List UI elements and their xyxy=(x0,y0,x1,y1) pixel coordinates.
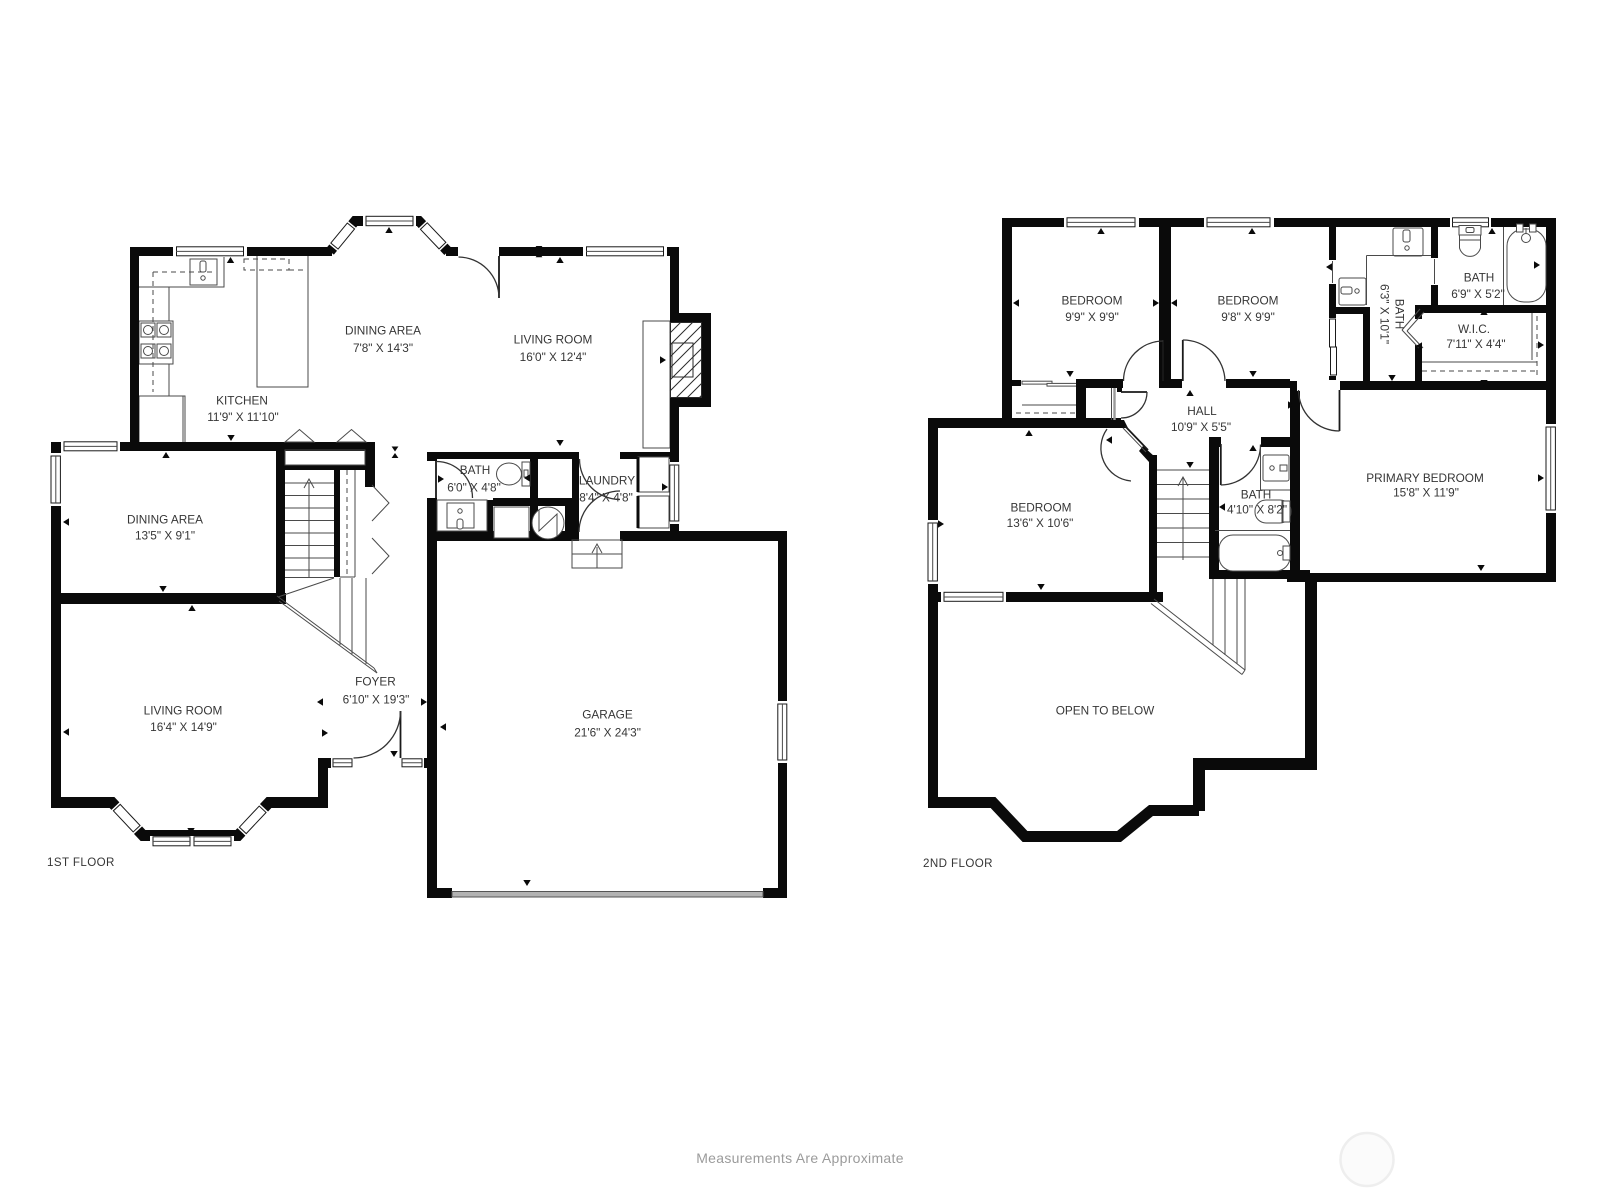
svg-text:10'9" X 5'5": 10'9" X 5'5" xyxy=(1171,420,1231,434)
svg-text:9'9" X 9'9": 9'9" X 9'9" xyxy=(1065,310,1119,324)
svg-text:6'3" X 10'1": 6'3" X 10'1" xyxy=(1378,284,1392,344)
svg-text:LAUNDRY: LAUNDRY xyxy=(579,473,635,487)
svg-text:Measurements Are Approximate: Measurements Are Approximate xyxy=(696,1150,904,1166)
svg-text:21'6" X 24'3": 21'6" X 24'3" xyxy=(574,725,641,739)
svg-text:GARAGE: GARAGE xyxy=(582,707,633,721)
svg-text:BATH: BATH xyxy=(460,463,491,477)
svg-text:W.I.C.: W.I.C. xyxy=(1458,322,1490,336)
svg-text:7'8" X 14'3": 7'8" X 14'3" xyxy=(353,341,413,355)
svg-text:LIVING ROOM: LIVING ROOM xyxy=(514,332,593,346)
svg-text:DINING AREA: DINING AREA xyxy=(345,323,421,337)
svg-text:16'4" X 14'9": 16'4" X 14'9" xyxy=(150,720,217,734)
svg-text:BATH: BATH xyxy=(1464,270,1495,284)
svg-text:KITCHEN: KITCHEN xyxy=(216,393,268,407)
svg-text:BATH: BATH xyxy=(1241,487,1272,501)
svg-text:BEDROOM: BEDROOM xyxy=(1218,293,1279,307)
svg-text:6'0" X 4'8": 6'0" X 4'8" xyxy=(447,480,501,494)
svg-text:6'10" X 19'3": 6'10" X 19'3" xyxy=(343,692,410,706)
svg-text:16'0" X 12'4": 16'0" X 12'4" xyxy=(520,350,587,364)
svg-text:OPEN TO BELOW: OPEN TO BELOW xyxy=(1056,703,1155,717)
svg-text:13'5" X 9'1": 13'5" X 9'1" xyxy=(135,528,195,542)
svg-text:BEDROOM: BEDROOM xyxy=(1011,500,1072,514)
svg-text:LIVING ROOM: LIVING ROOM xyxy=(144,703,223,717)
svg-text:6'9" X 5'2": 6'9" X 5'2" xyxy=(1451,287,1505,301)
svg-text:9'8" X 9'9": 9'8" X 9'9" xyxy=(1221,310,1275,324)
svg-text:PRIMARY BEDROOM: PRIMARY BEDROOM xyxy=(1366,471,1484,485)
svg-text:FOYER: FOYER xyxy=(355,674,396,688)
svg-text:7'11" X 4'4": 7'11" X 4'4" xyxy=(1446,337,1505,351)
svg-text:2ND FLOOR: 2ND FLOOR xyxy=(923,857,993,870)
svg-text:11'9" X 11'10": 11'9" X 11'10" xyxy=(207,410,278,424)
svg-text:BEDROOM: BEDROOM xyxy=(1062,293,1123,307)
svg-text:1ST FLOOR: 1ST FLOOR xyxy=(47,856,115,869)
svg-text:8'4" X 4'8": 8'4" X 4'8" xyxy=(579,490,633,504)
svg-text:DINING AREA: DINING AREA xyxy=(127,512,203,526)
svg-text:13'6" X 10'6": 13'6" X 10'6" xyxy=(1007,516,1074,530)
svg-text:4'10" X 8'2": 4'10" X 8'2" xyxy=(1227,502,1287,516)
svg-text:BATH: BATH xyxy=(1393,299,1407,330)
svg-text:HALL: HALL xyxy=(1187,404,1217,418)
svg-text:15'8" X 11'9": 15'8" X 11'9" xyxy=(1393,485,1459,499)
